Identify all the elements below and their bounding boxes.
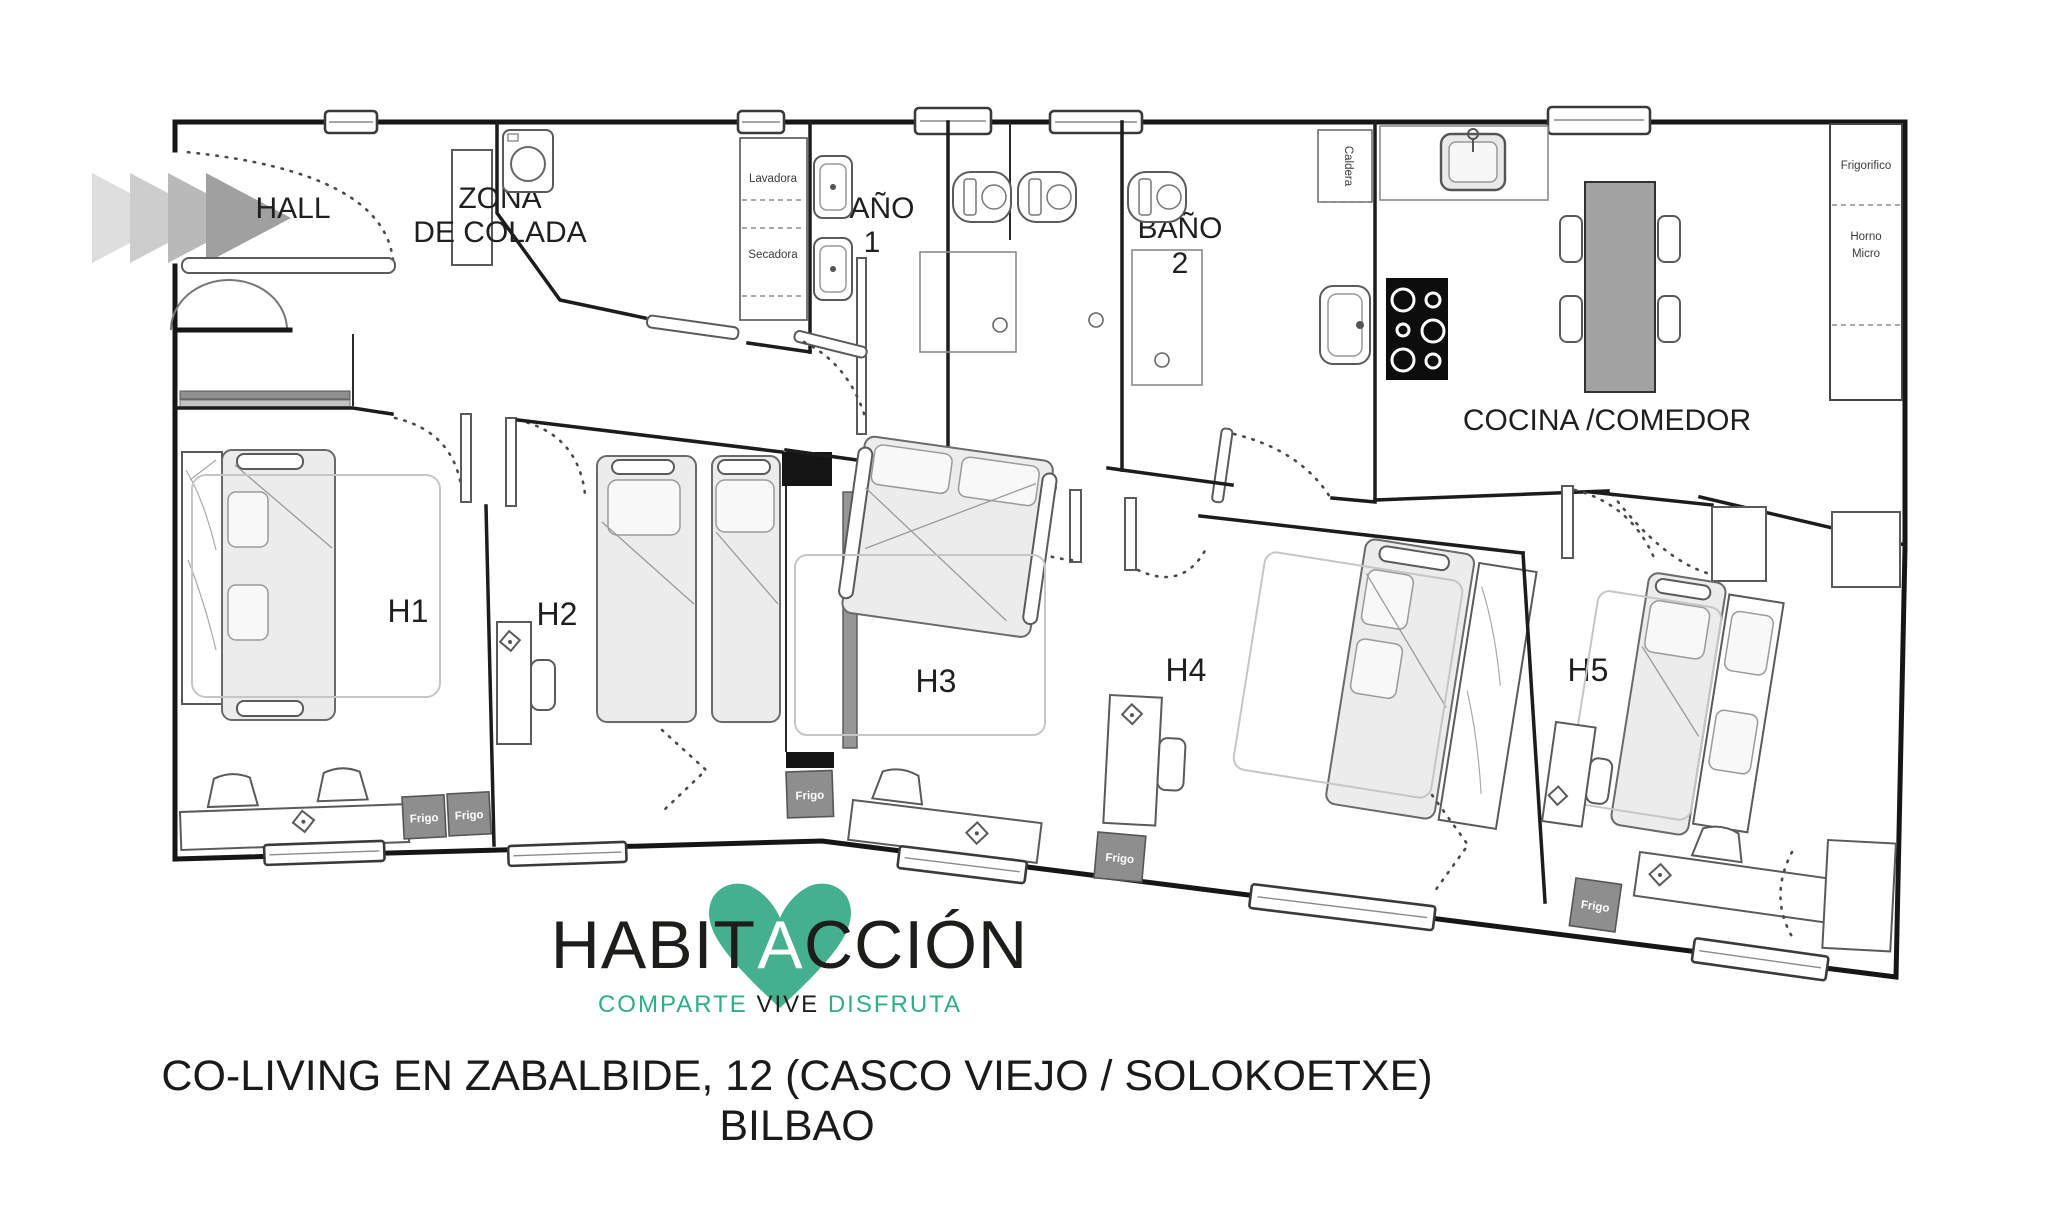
room-h4: H4 Frigo [1094,516,1538,930]
logo-word-post: CCIÓN [804,907,1028,983]
toilet-icon [953,172,1011,222]
bath2-door [1212,428,1233,503]
toilet-icon [1018,172,1076,222]
dining-table [1560,182,1680,392]
address-line1: CO-LIVING EN ZABALBIDE, 12 (CASCO VIEJO … [161,1052,1432,1100]
logo-tagline: COMPARTE VIVE DISFRUTA [598,991,962,1018]
mini-fridge: Frigo [1094,832,1146,882]
svg-text:Frigo: Frigo [795,790,824,803]
laundry-column: Lavadora Secadora [740,138,807,320]
kitchen-label: COCINA /COMEDOR [1463,404,1751,437]
lavadora-label: Lavadora [749,173,798,185]
bed [836,435,1059,639]
bed [192,450,440,720]
room-bath1: BAÑO 1 [793,122,948,458]
horno-label-2: Micro [1852,248,1880,260]
mini-fridge: Frigo [402,795,446,839]
room-wc [920,122,1122,470]
address-line2: BILBAO [719,1102,874,1150]
washing-machine-icon [503,130,553,192]
desk [1542,722,1617,830]
caldera-label: Caldera [1342,146,1354,187]
bed [597,456,696,722]
desk [179,766,410,850]
bed [1610,572,1785,845]
boiler-closet: Caldera [1318,130,1372,202]
svg-text:Frigo: Frigo [1105,852,1135,866]
svg-text:Frigo: Frigo [455,809,484,822]
wardrobe [182,452,222,704]
logo-word-pre: HABIT [551,907,756,983]
frigorifico-label: Frigorifico [1841,160,1891,172]
bed [712,456,780,722]
mini-fridge: Frigo [1569,878,1621,932]
bath2-label-2: 2 [1172,247,1189,280]
h4-label: H4 [1166,652,1207,688]
svg-text:Frigo: Frigo [410,812,439,825]
window [264,841,385,865]
closet [1832,512,1900,587]
sink-icon [814,238,852,300]
room-h2: H2 [497,420,782,866]
hall-label: HALL [255,192,330,225]
shower-tray [920,252,1016,352]
laundry-label-2: DE COLADA [413,216,586,249]
window [508,842,627,866]
window [1249,884,1436,930]
logo-word-mid: A [757,907,803,983]
h3-label: H3 [916,663,957,699]
h1-label: H1 [388,593,429,629]
secadora-label: Secadora [748,249,798,261]
bath1-label-2: 1 [864,226,881,259]
closet [1712,507,1766,581]
hall-closet-arc [171,280,287,330]
room-kitchen: COCINA /COMEDOR Frigo [1375,122,1905,574]
floor-plan: HALL ZONA DE COLADA Lavadora Secadora [0,0,2048,1205]
sink-icon [814,156,852,218]
logo: HABIT A CCIÓN COMPARTE VIVE DISFRUTA [551,884,1028,1018]
desk [497,622,555,744]
washbasin-icon [1320,286,1370,364]
appliance-column: Frigorifico Horno Micro [1830,124,1902,400]
h2-label: H2 [537,596,578,632]
mini-fridge: Frigo [786,770,834,818]
desk [1103,695,1188,827]
room-bath2: BAÑO 2 Caldera [1122,122,1375,503]
hob-icon [1386,278,1448,380]
closet [1822,840,1896,951]
mini-fridge: Frigo [447,792,491,836]
window [1692,938,1829,981]
laundry-door [646,315,739,340]
toilet-icon [1128,172,1186,222]
room-h1: H1 Frigo Fr [179,414,516,865]
room-h5: H5 Frigo [1523,486,1900,981]
footer: CO-LIVING EN ZABALBIDE, 12 (CASCO VIEJO … [161,1052,1432,1150]
horno-label-1: Horno [1850,231,1881,243]
kitchen-sink-icon [1441,129,1505,190]
